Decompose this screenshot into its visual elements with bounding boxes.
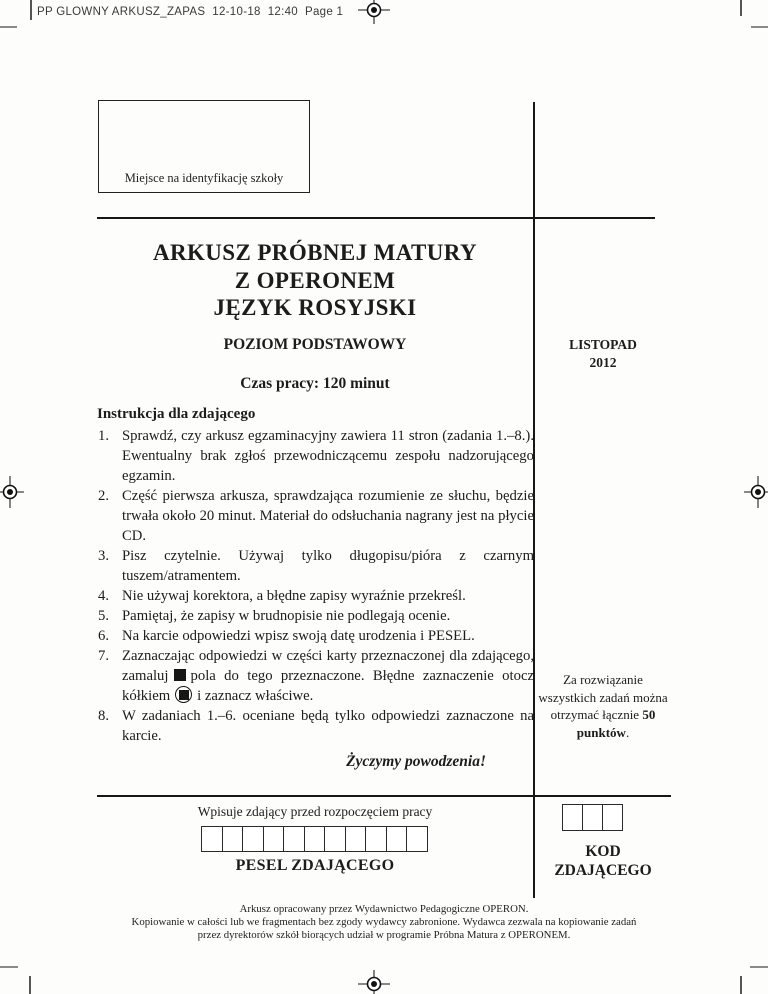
instruction-item: Pamiętaj, że zapisy w brudnopisie nie po… [97,606,534,626]
crop-mark-top-left-v [30,0,32,20]
pesel-boxes [201,826,428,852]
filled-square-icon [174,669,186,681]
crop-mark-top-left-h [0,26,17,28]
kod-label-line-2: ZDAJĄCEGO [536,861,670,880]
printer-slug: PP GLOWNY ARKUSZ_ZAPAS 12-10-18 12:40 Pa… [37,6,343,18]
kod-label-line-1: KOD [536,842,670,861]
instructions-list: Sprawdź, czy arkusz egzaminacyjny zawier… [97,426,534,746]
instruction-item: Nie używaj korektora, a błędne zapisy wy… [97,586,534,606]
title-line-3: JĘZYK ROSYJSKI [97,294,533,322]
pesel-box [263,826,284,852]
kod-box [602,804,623,831]
footer-line-2: Kopiowanie w całości lub we fragmentach … [60,916,708,929]
pesel-box [201,826,222,852]
registration-target-icon [742,476,768,508]
good-luck-note: Życzymy powodzenia! [97,753,486,771]
pesel-box [365,826,386,852]
bottom-rule [97,795,671,797]
kod-box [582,804,602,831]
pesel-box [304,826,325,852]
crop-mark-bottom-left-h [0,966,18,968]
kod-label: KOD ZDAJĄCEGO [536,842,670,880]
page-title: ARKUSZ PRÓBNEJ MATURY Z OPERONEM JĘZYK R… [97,239,533,322]
crop-mark-top-right-v [740,0,742,16]
school-id-box: Miejsce na identyfikację szkoły [98,100,310,193]
kod-box [562,804,582,831]
school-id-label: Miejsce na identyfikację szkoły [125,171,284,192]
crop-mark-bottom-right-h [750,966,768,968]
pesel-label: PESEL ZDAJĄCEGO [97,857,533,875]
instruction-item: Na karcie odpowiedzi wpisz swoją datę ur… [97,626,534,646]
copyright-footer: Arkusz opracowany przez Wydawnictwo Peda… [60,903,708,943]
work-time: Czas pracy: 120 minut [97,375,533,393]
pesel-box [324,826,345,852]
instruction-item: Pisz czytelnie. Używaj tylko długopisu/p… [97,546,534,586]
circled-square-icon [175,686,192,703]
pesel-box [406,826,428,852]
instructions-heading: Instrukcja dla zdającego [97,406,255,423]
pesel-box [345,826,366,852]
exam-level: POZIOM PODSTAWOWY [97,336,533,354]
instruction-text: i zaznacz właściwe. [197,688,313,704]
footer-line-3: przez dyrektorów szkół biorących udział … [60,929,708,942]
instruction-item: W zadaniach 1.–6. oceniane będą tylko od… [97,706,534,746]
instruction-item: Sprawdź, czy arkusz egzaminacyjny zawier… [97,426,534,486]
exam-session: LISTOPAD 2012 [536,336,670,372]
session-year: 2012 [536,354,670,372]
registration-target-icon [358,0,390,26]
kod-boxes [562,804,623,831]
pesel-box [222,826,243,852]
exam-cover-page: PP GLOWNY ARKUSZ_ZAPAS 12-10-18 12:40 Pa… [0,0,768,994]
crop-mark-bottom-left-v [29,976,31,994]
points-note-period: . [626,725,629,740]
fill-in-label: Wpisuje zdający przed rozpoczęciem pracy [97,804,533,820]
title-line-1: ARKUSZ PRÓBNEJ MATURY [97,239,533,267]
registration-target-icon [358,968,390,994]
pesel-box [283,826,304,852]
session-month: LISTOPAD [536,336,670,354]
registration-target-icon [0,476,26,508]
instruction-item: Zaznaczając odpowiedzi w części karty pr… [97,646,534,706]
pesel-box [242,826,263,852]
instruction-item: Część pierwsza arkusza, sprawdzająca roz… [97,486,534,546]
footer-line-1: Arkusz opracowany przez Wydawnictwo Peda… [60,903,708,916]
title-line-2: Z OPERONEM [97,267,533,295]
crop-mark-top-right-h [751,26,768,28]
crop-mark-bottom-right-v [740,976,742,994]
points-note: Za rozwiązanie wszystkich zadań można ot… [536,671,670,741]
top-rule [97,217,655,219]
pesel-box [386,826,407,852]
